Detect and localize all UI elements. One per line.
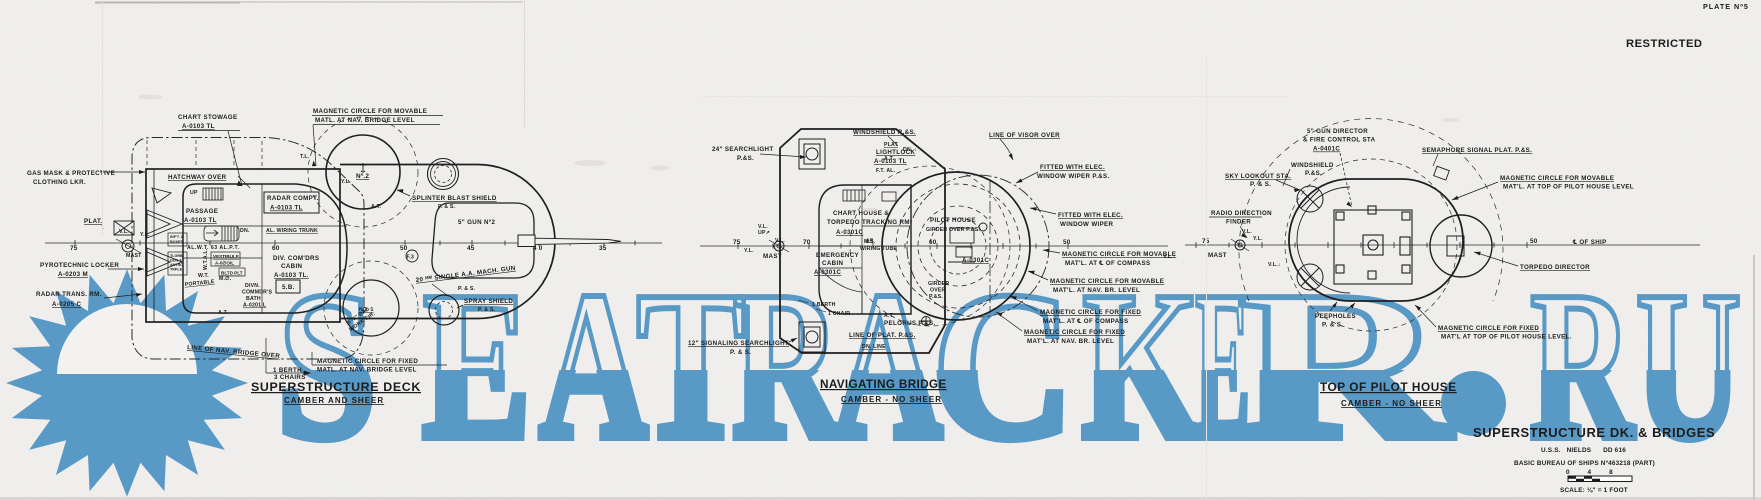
- svg-text:A-0401C: A-0401C: [1313, 146, 1340, 153]
- svg-text:BASIC BUREAU OF SHIPS Nº4: BASIC BUREAU OF SHIPS Nº463218 (PART): [1514, 460, 1655, 467]
- svg-text:SUPERSTRUCTURE DECK: SUPERSTRUCTURE DECK: [251, 380, 421, 394]
- svg-text:W.T.A.L.: W.T.A.L.: [203, 248, 209, 270]
- svg-text:FITTED WITH ELEC.: FITTED WITH ELEC.: [1040, 164, 1105, 171]
- svg-text:75: 75: [70, 245, 78, 252]
- svg-text:PLATE Nº5: PLATE Nº5: [1703, 2, 1749, 11]
- svg-text:PASSAGE: PASSAGE: [186, 208, 218, 215]
- svg-text:AL. WIRING TRUNK: AL. WIRING TRUNK: [266, 228, 318, 234]
- svg-text:12" SIGNALING SEARCHLIGHT: 12" SIGNALING SEARCHLIGHT: [688, 340, 789, 347]
- svg-text:CHART HOUSE &: CHART HOUSE &: [833, 210, 889, 217]
- svg-text:MAST: MAST: [1208, 252, 1227, 259]
- svg-text:V.L.: V.L.: [119, 229, 129, 235]
- svg-text:P. & S.: P. & S.: [438, 204, 456, 210]
- svg-text:M.∅.: M.∅.: [219, 276, 232, 282]
- svg-text:BOXES: BOXES: [170, 240, 183, 244]
- svg-text:A.T.: A.T.: [884, 313, 894, 319]
- svg-text:TOP OF PILOT HOUSE: TOP OF PILOT HOUSE: [1320, 380, 1457, 394]
- svg-text:MAGNETIC CIRCLE FOR MOVABLE: MAGNETIC CIRCLE FOR MOVABLE: [1050, 278, 1164, 285]
- svg-text:P.&S.: P.&S.: [929, 294, 943, 300]
- svg-text:A.T.: A.T.: [884, 156, 894, 162]
- svg-text:TORPEDO TRACKING RM.: TORPEDO TRACKING RM.: [827, 219, 912, 226]
- svg-text:MAGNETIC CIRCLE FOR FIXED: MAGNETIC CIRCLE FOR FIXED: [1438, 325, 1539, 332]
- svg-text:50: 50: [400, 245, 408, 252]
- svg-text:MATL. AT NAV. BRIDGE LEVEL: MATL. AT NAV. BRIDGE LEVEL: [317, 367, 417, 374]
- svg-text:WINDSHIELD: WINDSHIELD: [1291, 162, 1334, 169]
- svg-text:HATCHWAY OVER: HATCHWAY OVER: [168, 174, 227, 181]
- svg-text:RADIO DIRECTION: RADIO DIRECTION: [1211, 210, 1272, 217]
- svg-text:GAS MASK & PROTECTIVE: GAS MASK & PROTECTIVE: [27, 170, 115, 177]
- svg-text:1 BERTH: 1 BERTH: [812, 302, 836, 308]
- svg-text:MAGNETIC CIRCLE FOR MOVABLE: MAGNETIC CIRCLE FOR MOVABLE: [313, 108, 427, 115]
- svg-text:Y.L.: Y.L.: [140, 232, 150, 238]
- svg-text:MAT'L. AT ℄ OF COMPASS: MAT'L. AT ℄ OF COMPASS: [1065, 260, 1150, 267]
- svg-text:SUPERSTRUCTURE DK. & BRIDGES: SUPERSTRUCTURE DK. & BRIDGES: [1473, 425, 1715, 440]
- svg-text:UP↗: UP↗: [758, 230, 770, 236]
- svg-text:A-0301C: A-0301C: [836, 229, 863, 236]
- svg-text:TORPEDO DIRECTOR: TORPEDO DIRECTOR: [1520, 264, 1590, 271]
- svg-text:F.T. AL.: F.T. AL.: [876, 168, 896, 174]
- svg-text:LINE OF VISOR OVER: LINE OF VISOR OVER: [989, 132, 1060, 139]
- svg-text:PLAT.: PLAT.: [84, 218, 102, 225]
- svg-text:FINDER: FINDER: [1226, 219, 1251, 226]
- svg-text:FITTED WITH ELEC.: FITTED WITH ELEC.: [1058, 212, 1123, 219]
- svg-text:CABIN: CABIN: [822, 260, 844, 267]
- svg-text:Y.L.: Y.L.: [744, 248, 754, 254]
- svg-text:LINE OF PLAT. P.&S.: LINE OF PLAT. P.&S.: [849, 332, 916, 339]
- svg-text:SEMAPHORE SIGNAL PLAT. P.&S.: SEMAPHORE SIGNAL PLAT. P.&S.: [1422, 147, 1532, 154]
- svg-text:MAT'L. AT ℄ OF COMPASS: MAT'L. AT ℄ OF COMPASS: [1043, 318, 1128, 325]
- svg-text:SKY LOOKOUT STA.: SKY LOOKOUT STA.: [1225, 173, 1291, 180]
- svg-text:DN. LINE: DN. LINE: [862, 344, 886, 350]
- svg-text:M.S.: M.S.: [864, 239, 876, 245]
- svg-text:45: 45: [467, 245, 475, 252]
- svg-text:MAT'L. AT TOP OF PILOT HOUSE: MAT'L. AT TOP OF PILOT HOUSE LEVEL: [1503, 184, 1634, 191]
- svg-text:50: 50: [1530, 238, 1538, 245]
- svg-text:V.L.: V.L.: [775, 238, 785, 244]
- svg-text:GUN &: GUN &: [170, 259, 182, 263]
- svg-text:MAT'L AT TOP OF PILOT HOUSE LE: MAT'L AT TOP OF PILOT HOUSE LEVEL.: [1441, 334, 1572, 341]
- svg-text:RADAR TRANS. RM.: RADAR TRANS. RM.: [36, 291, 102, 298]
- svg-text:BLTD PLT: BLTD PLT: [221, 271, 243, 276]
- svg-text:MAGNETIC CIRCLE FOR MOVABLE: MAGNETIC CIRCLE FOR MOVABLE: [1062, 251, 1176, 258]
- svg-text:MAGNETIC CIRCLE FOR MOVABLE: MAGNETIC CIRCLE FOR MOVABLE: [1500, 175, 1614, 182]
- svg-text:60: 60: [272, 245, 280, 252]
- svg-text:A-0∅OIL: A-0∅OIL: [215, 261, 234, 266]
- svg-text:P.&S.: P.&S.: [1305, 170, 1322, 177]
- svg-text:U.S.S. NIELDS DD 616: U.S.S. NIELDS DD 616: [1541, 447, 1626, 454]
- svg-text:SCALE: ⅛" = 1 FOOT: SCALE: ⅛" = 1 FOOT: [1560, 487, 1628, 494]
- svg-text:1 CHAIR: 1 CHAIR: [828, 311, 850, 317]
- svg-text:F.3: F.3: [407, 255, 415, 261]
- svg-text:75: 75: [1202, 238, 1210, 245]
- svg-text:35: 35: [599, 245, 607, 252]
- svg-text:& FIRE CONTROL STA: & FIRE CONTROL STA: [1303, 137, 1376, 144]
- svg-text:CLOTHING LKR.: CLOTHING LKR.: [33, 179, 86, 186]
- svg-text:A-0103 TL: A-0103 TL: [184, 217, 217, 224]
- svg-text:MAT'L. AT NAV. BR. LEVEL: MAT'L. AT NAV. BR. LEVEL: [1053, 287, 1140, 294]
- svg-text:GIRDER: GIRDER: [928, 281, 949, 287]
- svg-text:W.T.: W.T.: [198, 273, 209, 279]
- svg-text:WINDSHIELD R.&S.: WINDSHIELD R.&S.: [853, 129, 916, 136]
- svg-text:75: 75: [733, 239, 741, 246]
- svg-text:WIRING TUBE: WIRING TUBE: [860, 246, 897, 252]
- svg-text:℄ OF SHIP: ℄ OF SHIP: [1572, 239, 1607, 246]
- svg-text:DN. ↓: DN. ↓: [903, 147, 917, 153]
- svg-text:MAGNETIC CIRCLE FOR FIXED: MAGNETIC CIRCLE FOR FIXED: [1040, 309, 1141, 316]
- svg-text:MAGNETIC CIRCLE FOR FIXED: MAGNETIC CIRCLE FOR FIXED: [1024, 329, 1125, 336]
- svg-text:A-0103 TL.: A-0103 TL.: [274, 272, 309, 279]
- svg-text:EMERGENCY: EMERGENCY: [816, 252, 860, 259]
- svg-text:BATH: BATH: [246, 296, 261, 302]
- svg-text:DIVN.: DIVN.: [245, 283, 260, 289]
- svg-text:CAMBER - NO SHEER: CAMBER - NO SHEER: [841, 395, 942, 404]
- svg-text:SPLINTER BLAST SHIELD: SPLINTER BLAST SHIELD: [412, 195, 497, 202]
- svg-text:MAST: MAST: [763, 253, 782, 260]
- svg-text:PYROTECHNIC LOCKER: PYROTECHNIC LOCKER: [40, 262, 119, 269]
- svg-text:MAGNETIC CIRCLE FOR FIXED: MAGNETIC CIRCLE FOR FIXED: [317, 358, 418, 365]
- svg-text:P. & S.: P. & S.: [730, 349, 751, 356]
- svg-text:A.T.: A.T.: [218, 310, 228, 316]
- svg-text:P. & S.: P. & S.: [1322, 322, 1343, 329]
- svg-text:NAVIGATING BRIDGE: NAVIGATING BRIDGE: [820, 377, 947, 391]
- svg-text:TLGRB: TLGRB: [170, 254, 183, 258]
- svg-text:5" GUN DIRECTOR: 5" GUN DIRECTOR: [1307, 128, 1368, 135]
- svg-text:CAMBER AND SHEER: CAMBER AND SHEER: [284, 396, 384, 405]
- svg-text:WINDOW WIPER P.&S.: WINDOW WIPER P.&S.: [1037, 173, 1110, 180]
- svg-text:T.L.: T.L.: [300, 154, 310, 160]
- svg-text:TRPLE: TRPLE: [170, 268, 183, 272]
- svg-text:A-0103 TL: A-0103 TL: [182, 123, 215, 130]
- svg-text:ANTRC: ANTRC: [170, 263, 183, 267]
- svg-text:PILOT HOUSE: PILOT HOUSE: [930, 217, 976, 224]
- svg-text:A-0205 C: A-0205 C: [52, 301, 81, 308]
- svg-text:VESTIBULE: VESTIBULE: [213, 254, 239, 259]
- svg-text:0 4 8: 0 4 8: [1566, 469, 1613, 476]
- svg-text:PLAT: PLAT: [884, 142, 899, 148]
- svg-text:Y.L.: Y.L.: [1253, 236, 1263, 242]
- svg-text:UP: UP: [190, 190, 198, 196]
- svg-text:AL.W.T. 63 AL.P.T.: AL.W.T. 63 AL.P.T.: [187, 245, 240, 251]
- svg-text:70: 70: [803, 239, 811, 246]
- svg-text:PEEPHOLES: PEEPHOLES: [1315, 313, 1356, 320]
- svg-text:V.L.↓: V.L.↓: [1163, 254, 1176, 260]
- svg-text:DN.: DN.: [240, 228, 250, 234]
- svg-text:GIRDER OVER P.&S.: GIRDER OVER P.&S.: [926, 227, 980, 233]
- svg-text:RADAR COMPT.: RADAR COMPT.: [267, 195, 319, 202]
- svg-text:Nº.2: Nº.2: [356, 173, 369, 180]
- svg-text:P. & S.: P. & S.: [1250, 181, 1271, 188]
- svg-text:RESTRICTED: RESTRICTED: [1626, 38, 1702, 50]
- svg-text:WINDOW WIPER: WINDOW WIPER: [1060, 221, 1114, 228]
- svg-text:A-0301C: A-0301C: [962, 257, 989, 264]
- svg-text:MAT'L. AT NAV. BR. LEVEL: MAT'L. AT NAV. BR. LEVEL: [1027, 338, 1114, 345]
- svg-text:MATL. AT NAV. BRIDGE LEVEL: MATL. AT NAV. BRIDGE LEVEL: [315, 117, 415, 124]
- svg-text:Y.L.: Y.L.: [341, 179, 351, 185]
- svg-text:5" GUN Nº2: 5" GUN Nº2: [458, 219, 495, 226]
- svg-text:INF'T. &: INF'T. &: [170, 235, 184, 239]
- svg-text:CABIN: CABIN: [281, 263, 303, 270]
- svg-text:A-0103 TL: A-0103 TL: [270, 205, 303, 212]
- svg-text:MAST: MAST: [126, 253, 142, 259]
- svg-text:50: 50: [1063, 239, 1071, 246]
- svg-text:CAMBER - NO SHEER: CAMBER - NO SHEER: [1341, 399, 1442, 408]
- svg-text:V.L.↓: V.L.↓: [1268, 262, 1281, 268]
- svg-text:DIV. COM'DRS: DIV. COM'DRS: [273, 255, 319, 262]
- svg-text:A-0301C: A-0301C: [814, 269, 841, 276]
- svg-text:P. & S.: P. & S.: [458, 286, 476, 292]
- svg-text:A.T.: A.T.: [371, 204, 381, 210]
- svg-text:A-0203 M: A-0203 M: [58, 271, 88, 278]
- svg-text:P.&S.: P.&S.: [737, 155, 754, 162]
- svg-text:CHART STOWAGE: CHART STOWAGE: [178, 114, 237, 121]
- svg-text:A-0201 L: A-0201 L: [243, 303, 267, 309]
- svg-text:24" SEARCHLIGHT: 24" SEARCHLIGHT: [712, 146, 773, 153]
- svg-text:OVER: OVER: [930, 288, 946, 294]
- svg-text:5.B.: 5.B.: [282, 284, 295, 291]
- svg-text:SPRAY SHIELD: SPRAY SHIELD: [464, 298, 513, 305]
- svg-text:P. & S.: P. & S.: [478, 307, 496, 313]
- svg-text:COMMDR'S: COMMDR'S: [242, 290, 273, 296]
